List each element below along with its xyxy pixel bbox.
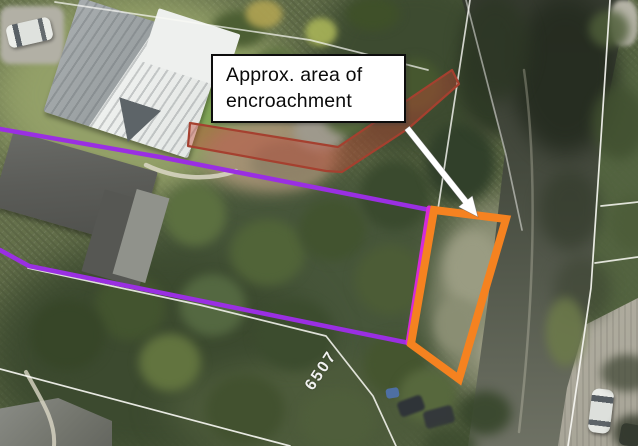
encroachment-callout-box: Approx. area of encroachment <box>211 54 406 123</box>
callout-line1: Approx. area of <box>226 62 400 88</box>
map-screenshot: 6507 Approx. area of encroachment <box>0 0 638 446</box>
callout-line2: encroachment <box>226 88 400 114</box>
